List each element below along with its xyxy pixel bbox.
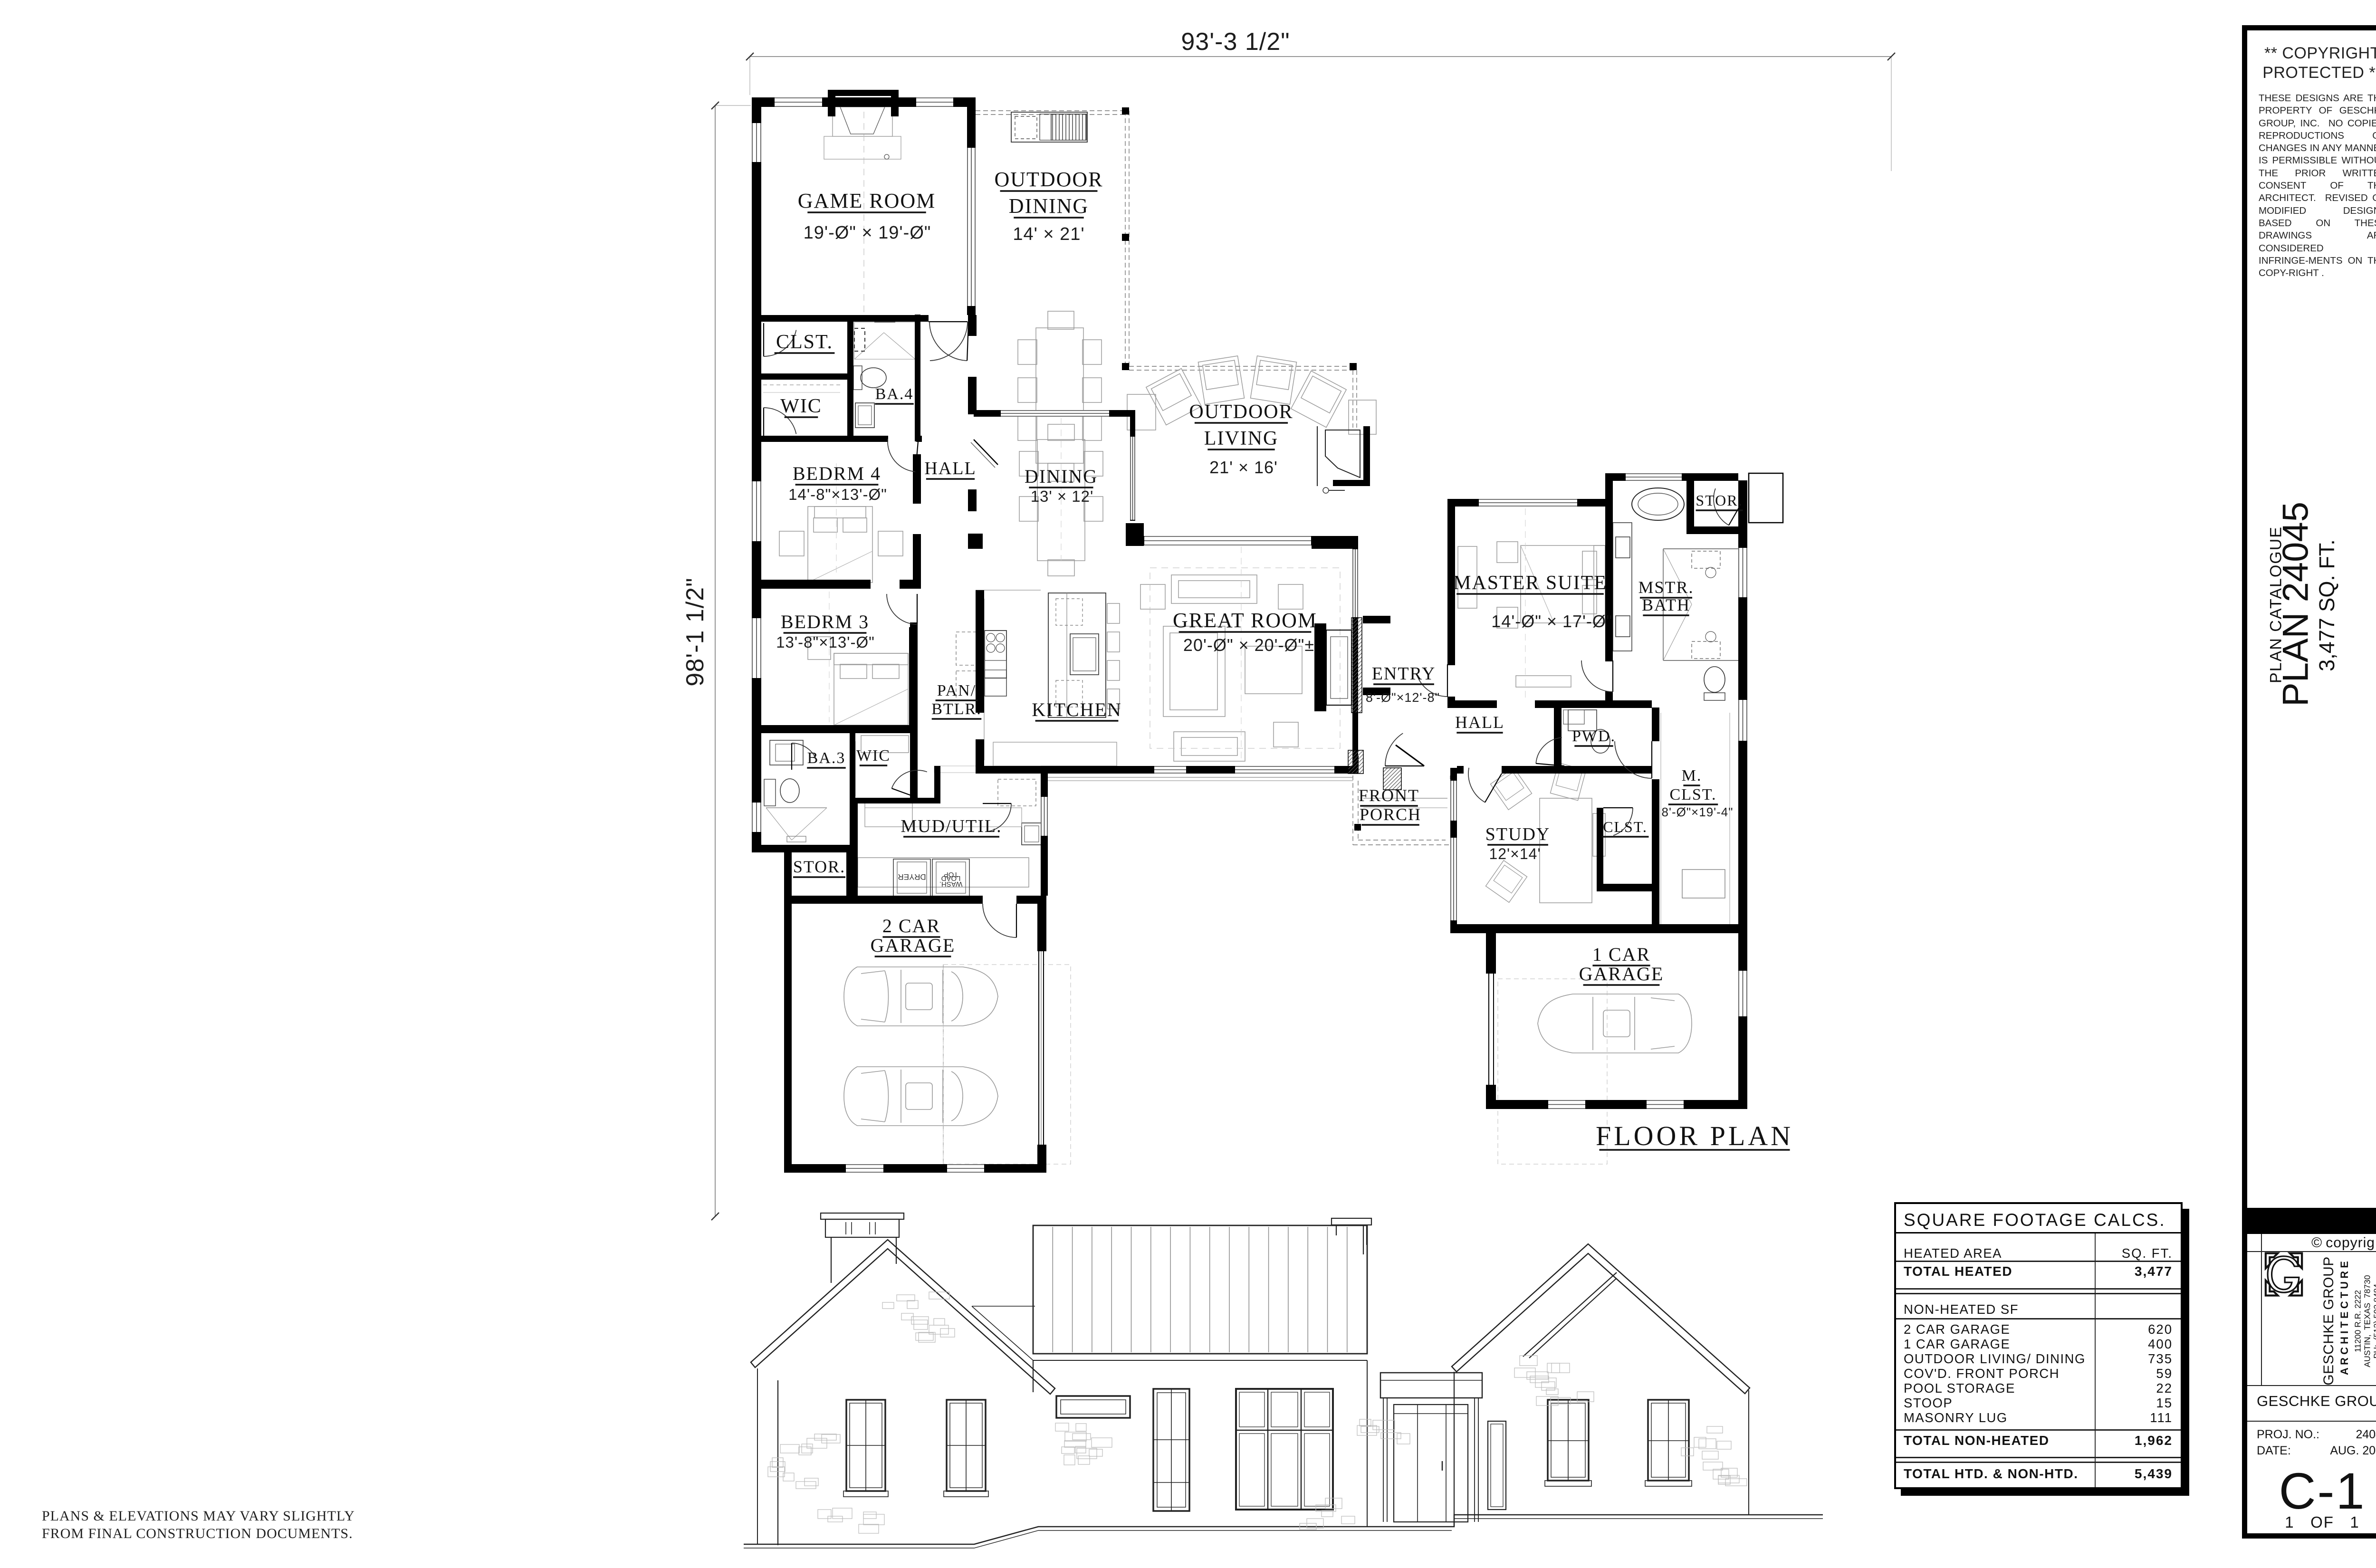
svg-text:DRYER: DRYER [898, 872, 926, 881]
svg-text:HALL: HALL [924, 459, 976, 478]
svg-text:13'-8"×13'-Ø": 13'-8"×13'-Ø" [776, 633, 875, 651]
svg-text:WASH.: WASH. [939, 880, 963, 888]
svg-text:ENTRY: ENTRY [1372, 664, 1436, 684]
svg-text:CLST.: CLST. [1603, 818, 1648, 835]
svg-text:1 CAR: 1 CAR [1592, 944, 1650, 965]
svg-text:GARAGE: GARAGE [1579, 963, 1664, 985]
svg-text:BTLR.: BTLR. [931, 700, 981, 718]
svg-text:20'-Ø" × 20'-Ø"±: 20'-Ø" × 20'-Ø"± [1183, 635, 1314, 655]
svg-text:LIVING: LIVING [1204, 428, 1279, 449]
svg-text:BA.4: BA.4 [875, 385, 914, 403]
svg-text:STOR.: STOR. [793, 857, 845, 876]
svg-text:BEDRM 4: BEDRM 4 [793, 463, 881, 484]
svg-text:STOR.: STOR. [1696, 492, 1743, 509]
svg-text:13' × 12': 13' × 12' [1031, 488, 1094, 505]
svg-text:BATH: BATH [1642, 595, 1690, 614]
svg-text:14'-8"×13'-Ø": 14'-8"×13'-Ø" [788, 486, 887, 503]
svg-text:FRONT: FRONT [1359, 786, 1419, 805]
svg-text:WIC: WIC [856, 747, 891, 765]
svg-text:BA.3: BA.3 [807, 749, 846, 767]
svg-text:GAME ROOM: GAME ROOM [798, 189, 936, 212]
svg-text:98'-1 1/2": 98'-1 1/2" [681, 577, 709, 686]
svg-text:GREAT ROOM: GREAT ROOM [1173, 609, 1317, 632]
svg-text:M.: M. [1682, 767, 1702, 784]
svg-text:21' × 16': 21' × 16' [1209, 458, 1278, 477]
svg-text:19'-Ø" × 19'-Ø": 19'-Ø" × 19'-Ø" [804, 223, 931, 243]
svg-text:MSTR.: MSTR. [1638, 578, 1694, 597]
svg-text:14' × 21': 14' × 21' [1013, 224, 1084, 244]
svg-text:8'-Ø"×12'-8": 8'-Ø"×12'-8" [1366, 690, 1440, 705]
svg-text:OUTDOOR: OUTDOOR [994, 168, 1103, 191]
svg-text:PWD.: PWD. [1572, 727, 1616, 745]
svg-text:GARAGE: GARAGE [871, 935, 956, 956]
svg-text:MUD/UTIL.: MUD/UTIL. [901, 816, 1002, 836]
svg-text:PORCH: PORCH [1360, 805, 1421, 824]
svg-text:14'-Ø" × 17'-Ø": 14'-Ø" × 17'-Ø" [1491, 612, 1612, 631]
svg-text:93'-3 1/2": 93'-3 1/2" [1181, 28, 1290, 56]
svg-text:DINING: DINING [1025, 466, 1098, 487]
svg-text:PAN/: PAN/ [937, 682, 976, 699]
svg-text:WIC: WIC [780, 395, 822, 417]
svg-text:2 CAR: 2 CAR [882, 915, 940, 937]
svg-text:HALL: HALL [1455, 713, 1504, 732]
svg-text:DINING: DINING [1009, 194, 1089, 218]
svg-text:CLST.: CLST. [1669, 786, 1716, 803]
svg-text:MASTER SUITE: MASTER SUITE [1453, 572, 1607, 594]
svg-text:8'-Ø"×19'-4": 8'-Ø"×19'-4" [1662, 805, 1734, 819]
svg-text:OUTDOOR: OUTDOOR [1189, 401, 1293, 423]
svg-text:12'×14': 12'×14' [1489, 845, 1541, 862]
svg-text:CLST.: CLST. [776, 331, 833, 353]
svg-text:STUDY: STUDY [1485, 824, 1551, 844]
svg-text:BEDRM 3: BEDRM 3 [781, 611, 869, 632]
svg-text:KITCHEN: KITCHEN [1032, 699, 1122, 720]
svg-text:FLOOR PLAN: FLOOR PLAN [1596, 1120, 1793, 1151]
